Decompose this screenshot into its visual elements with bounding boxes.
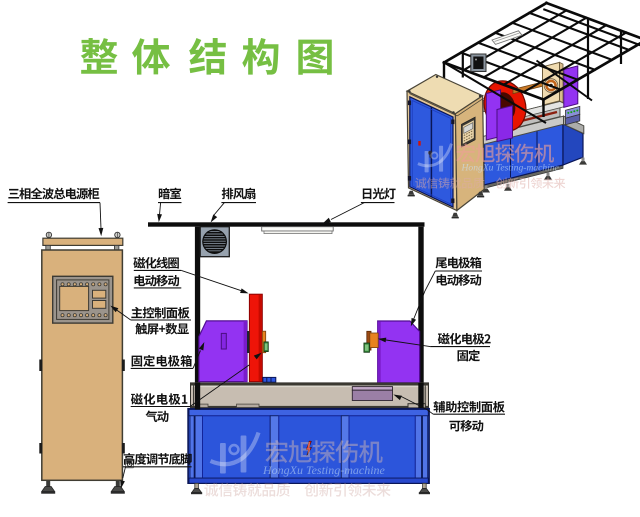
svg-text:HongXu Testing-machine: HongXu Testing-machine (461, 163, 560, 174)
svg-text:HongXu Testing-machine: HongXu Testing-machine (262, 463, 386, 477)
